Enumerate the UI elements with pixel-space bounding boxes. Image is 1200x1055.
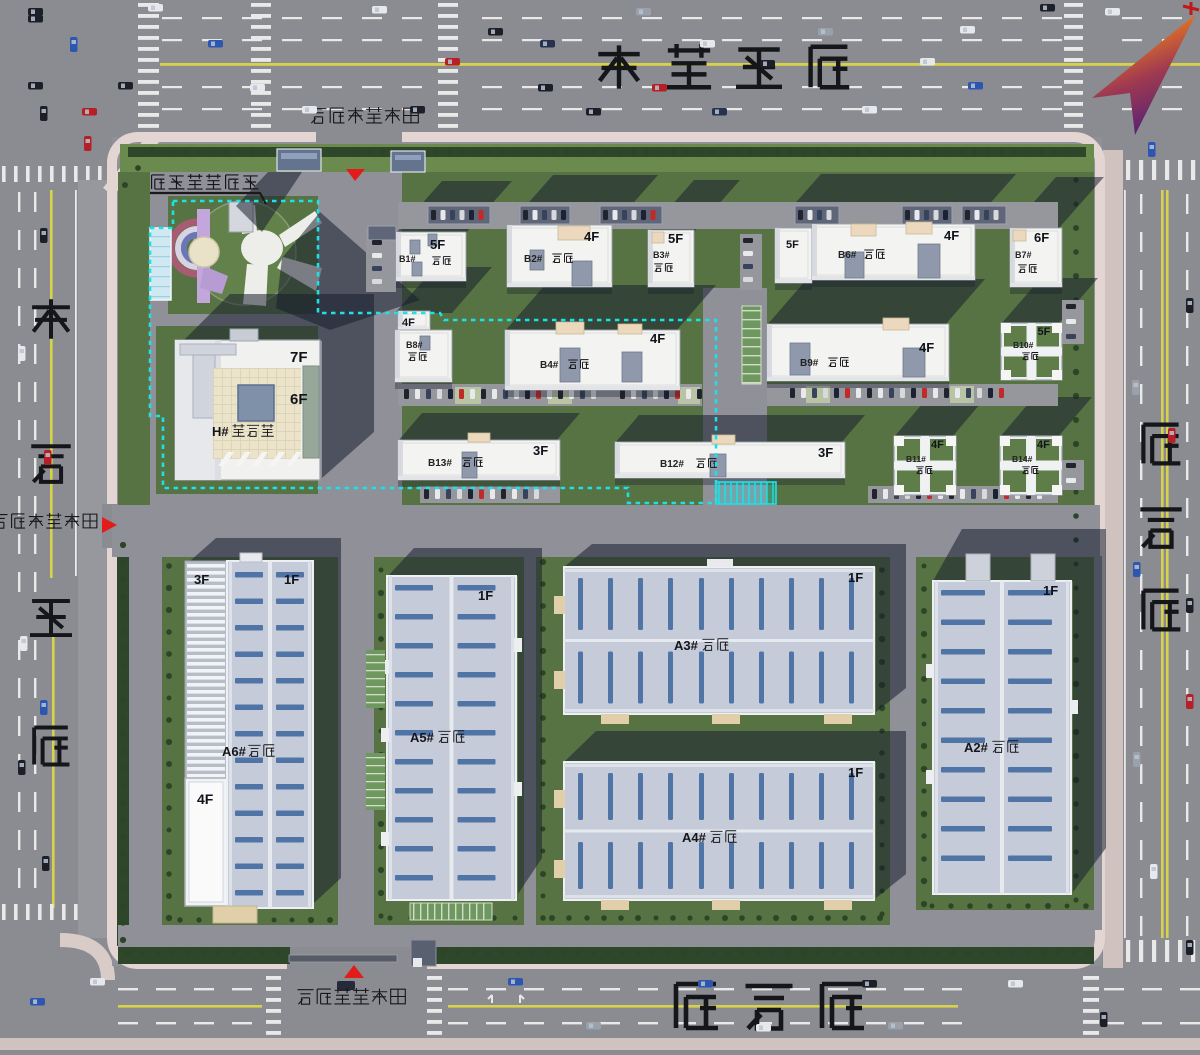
svg-text:5F: 5F bbox=[668, 231, 683, 246]
svg-text:4F: 4F bbox=[197, 791, 214, 807]
svg-text:7F: 7F bbox=[290, 349, 308, 366]
svg-text:4F: 4F bbox=[944, 228, 959, 243]
svg-text:B7#: B7# bbox=[1015, 250, 1032, 260]
svg-text:B3#: B3# bbox=[653, 250, 670, 260]
svg-text:4F: 4F bbox=[1037, 439, 1050, 451]
svg-text:4F: 4F bbox=[931, 439, 944, 451]
svg-text:A2#: A2# bbox=[964, 740, 989, 755]
svg-text:5F: 5F bbox=[430, 237, 445, 252]
svg-text:B2#: B2# bbox=[524, 254, 543, 265]
svg-text:A4#: A4# bbox=[682, 830, 707, 845]
svg-text:A5#: A5# bbox=[410, 730, 435, 745]
svg-text:B9#: B9# bbox=[800, 358, 819, 369]
svg-text:4F: 4F bbox=[919, 340, 934, 355]
svg-text:1F: 1F bbox=[478, 588, 493, 603]
svg-text:3F: 3F bbox=[194, 572, 209, 587]
svg-text:B4#: B4# bbox=[540, 360, 559, 371]
svg-text:5F: 5F bbox=[786, 239, 799, 251]
svg-text:5F: 5F bbox=[1038, 326, 1051, 338]
svg-text:1F: 1F bbox=[848, 765, 863, 780]
svg-text:B12#: B12# bbox=[660, 459, 684, 470]
svg-text:B11#: B11# bbox=[906, 454, 926, 464]
svg-text:6F: 6F bbox=[290, 391, 308, 408]
svg-text:B1#: B1# bbox=[399, 254, 416, 264]
svg-text:1F: 1F bbox=[1043, 583, 1058, 598]
svg-text:6F: 6F bbox=[1034, 230, 1049, 245]
svg-text:B6#: B6# bbox=[838, 250, 857, 261]
svg-text:4F: 4F bbox=[650, 331, 665, 346]
svg-text:4F: 4F bbox=[584, 229, 599, 244]
svg-text:1F: 1F bbox=[848, 570, 863, 585]
svg-text:3F: 3F bbox=[818, 445, 833, 460]
svg-text:B10#: B10# bbox=[1013, 340, 1034, 350]
svg-text:4F: 4F bbox=[402, 317, 415, 329]
svg-text:B13#: B13# bbox=[428, 458, 452, 469]
svg-text:3F: 3F bbox=[533, 443, 548, 458]
svg-text:1F: 1F bbox=[284, 572, 299, 587]
svg-text:A3#: A3# bbox=[674, 638, 699, 653]
svg-text:B14#: B14# bbox=[1012, 454, 1033, 464]
svg-text:B8#: B8# bbox=[406, 340, 423, 350]
svg-text:A6#: A6# bbox=[222, 744, 247, 759]
svg-text:H#: H# bbox=[212, 424, 229, 439]
